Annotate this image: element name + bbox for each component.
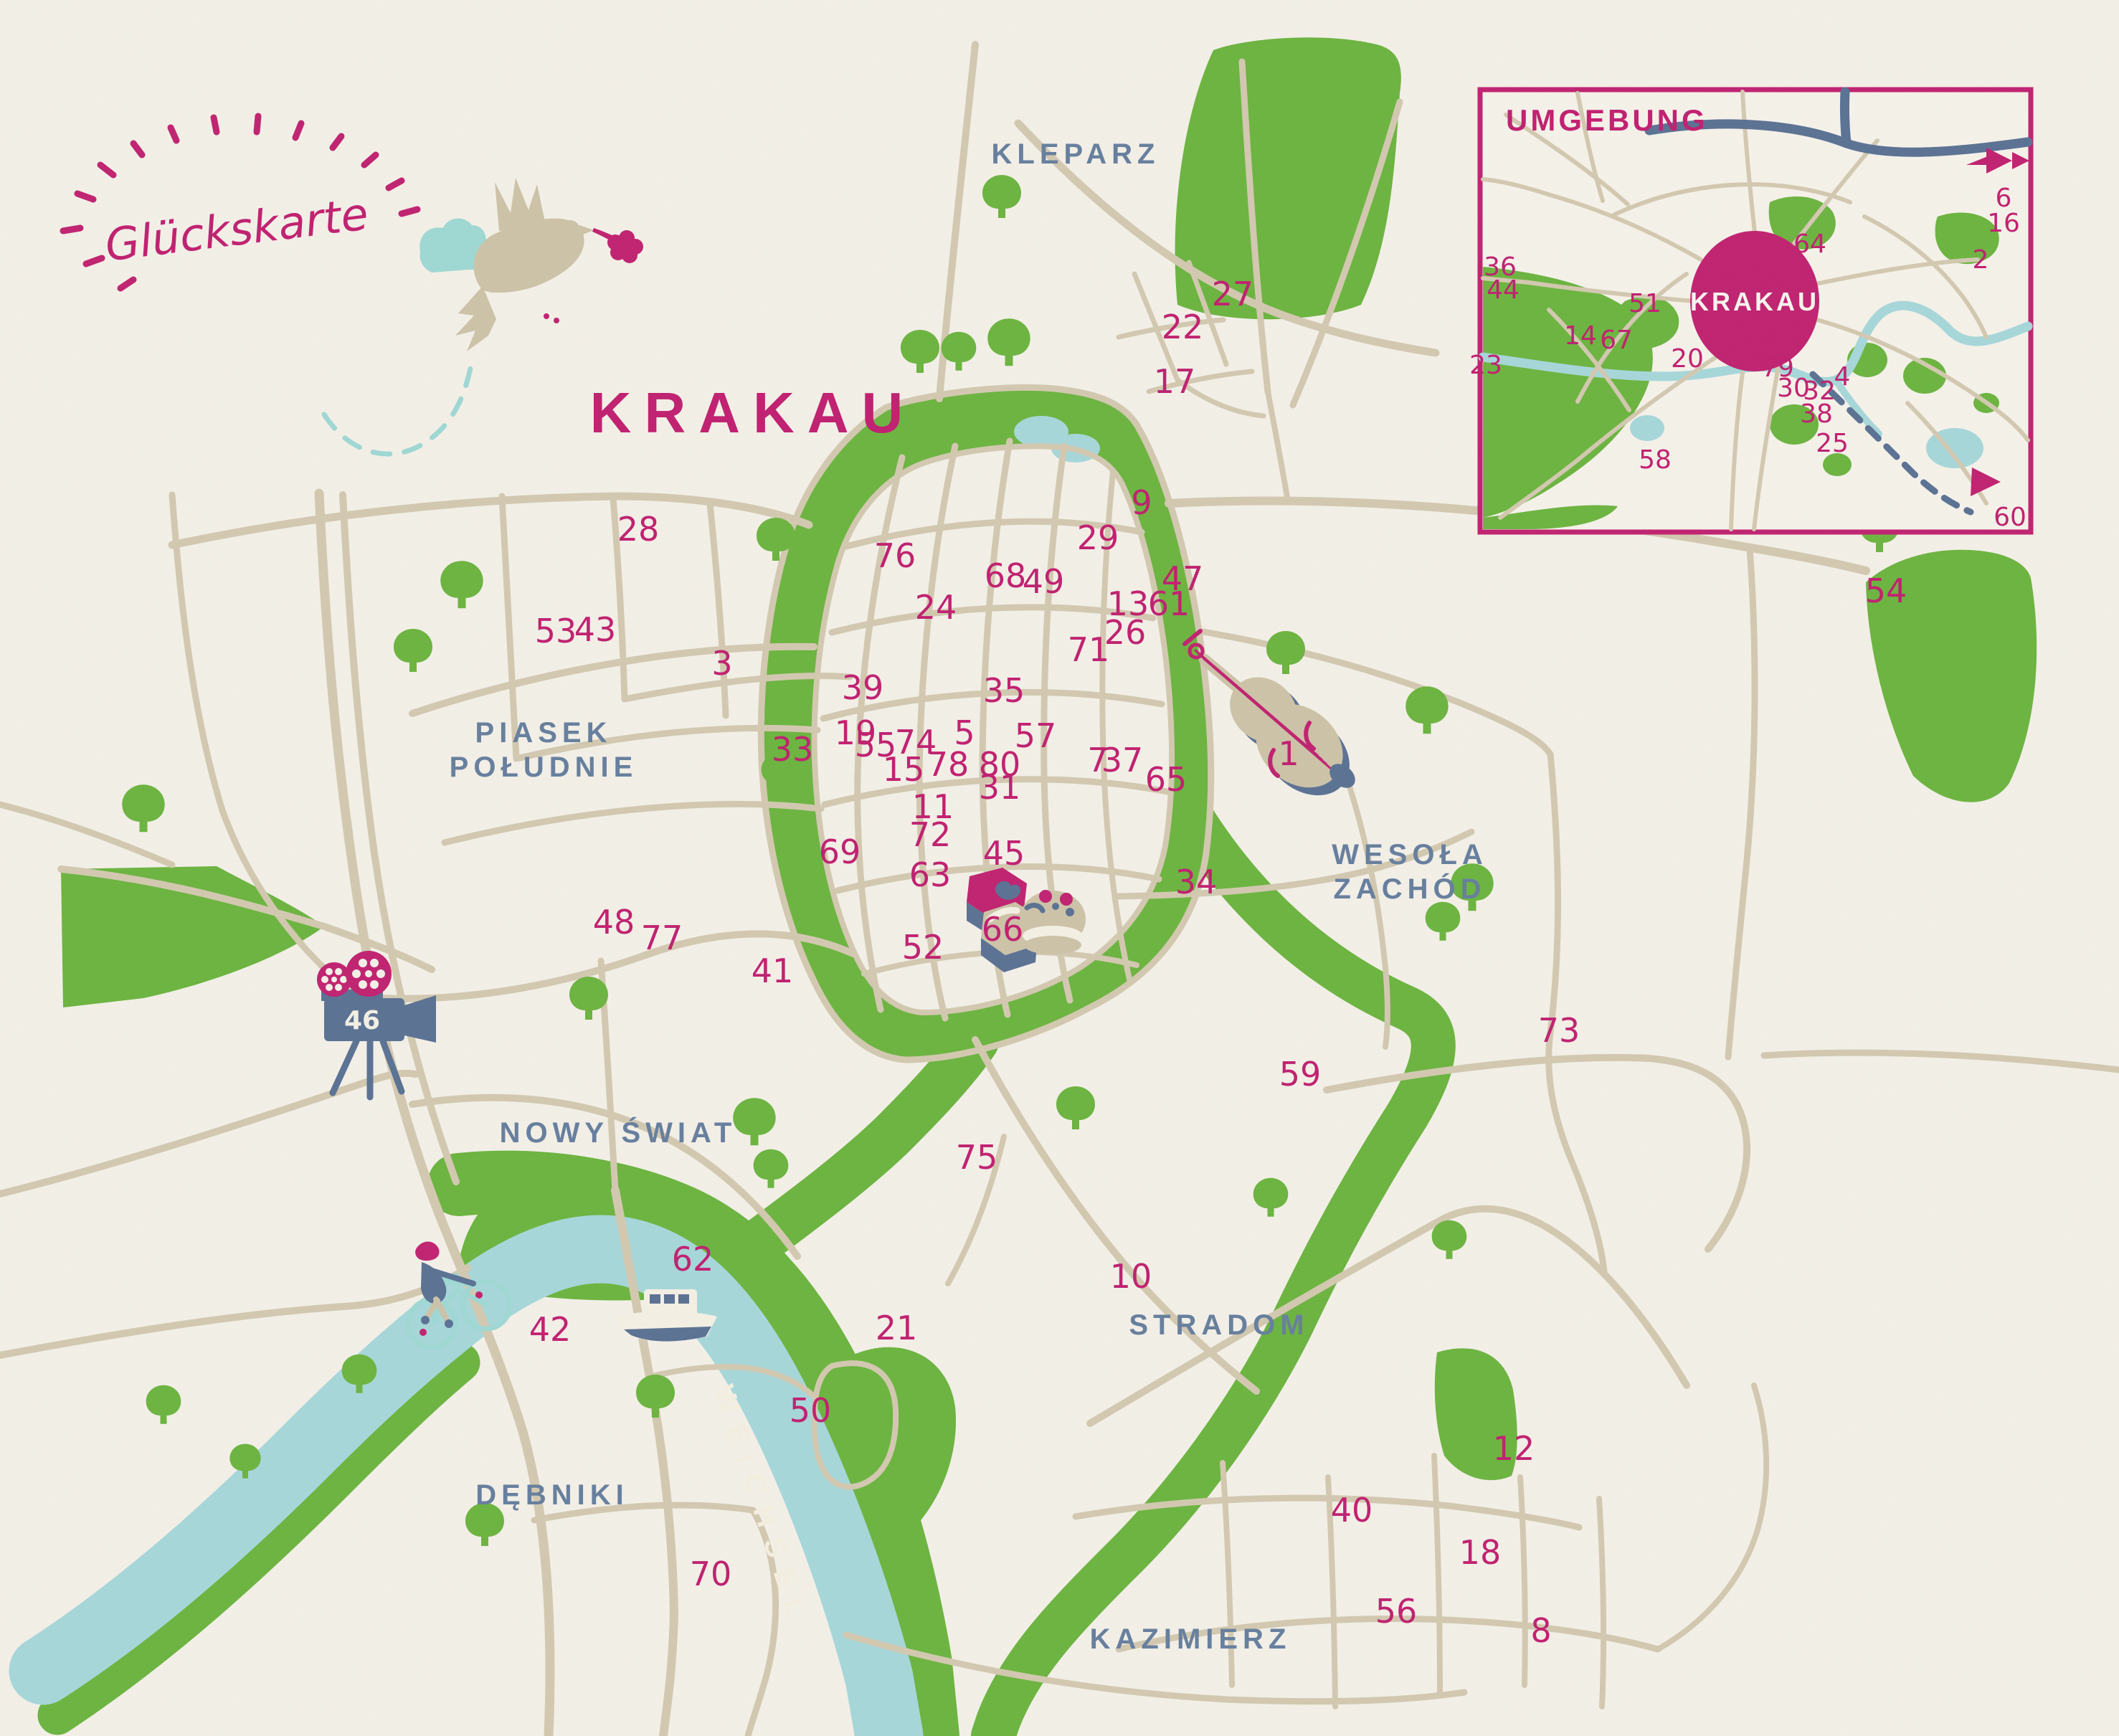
paper-texture bbox=[0, 0, 2119, 1736]
map-artwork bbox=[0, 0, 2119, 1736]
krakau-illustrated-map: KRAKAU Glückskarte UMGEBUNG KRAKAU KLEPA… bbox=[0, 0, 2119, 1736]
